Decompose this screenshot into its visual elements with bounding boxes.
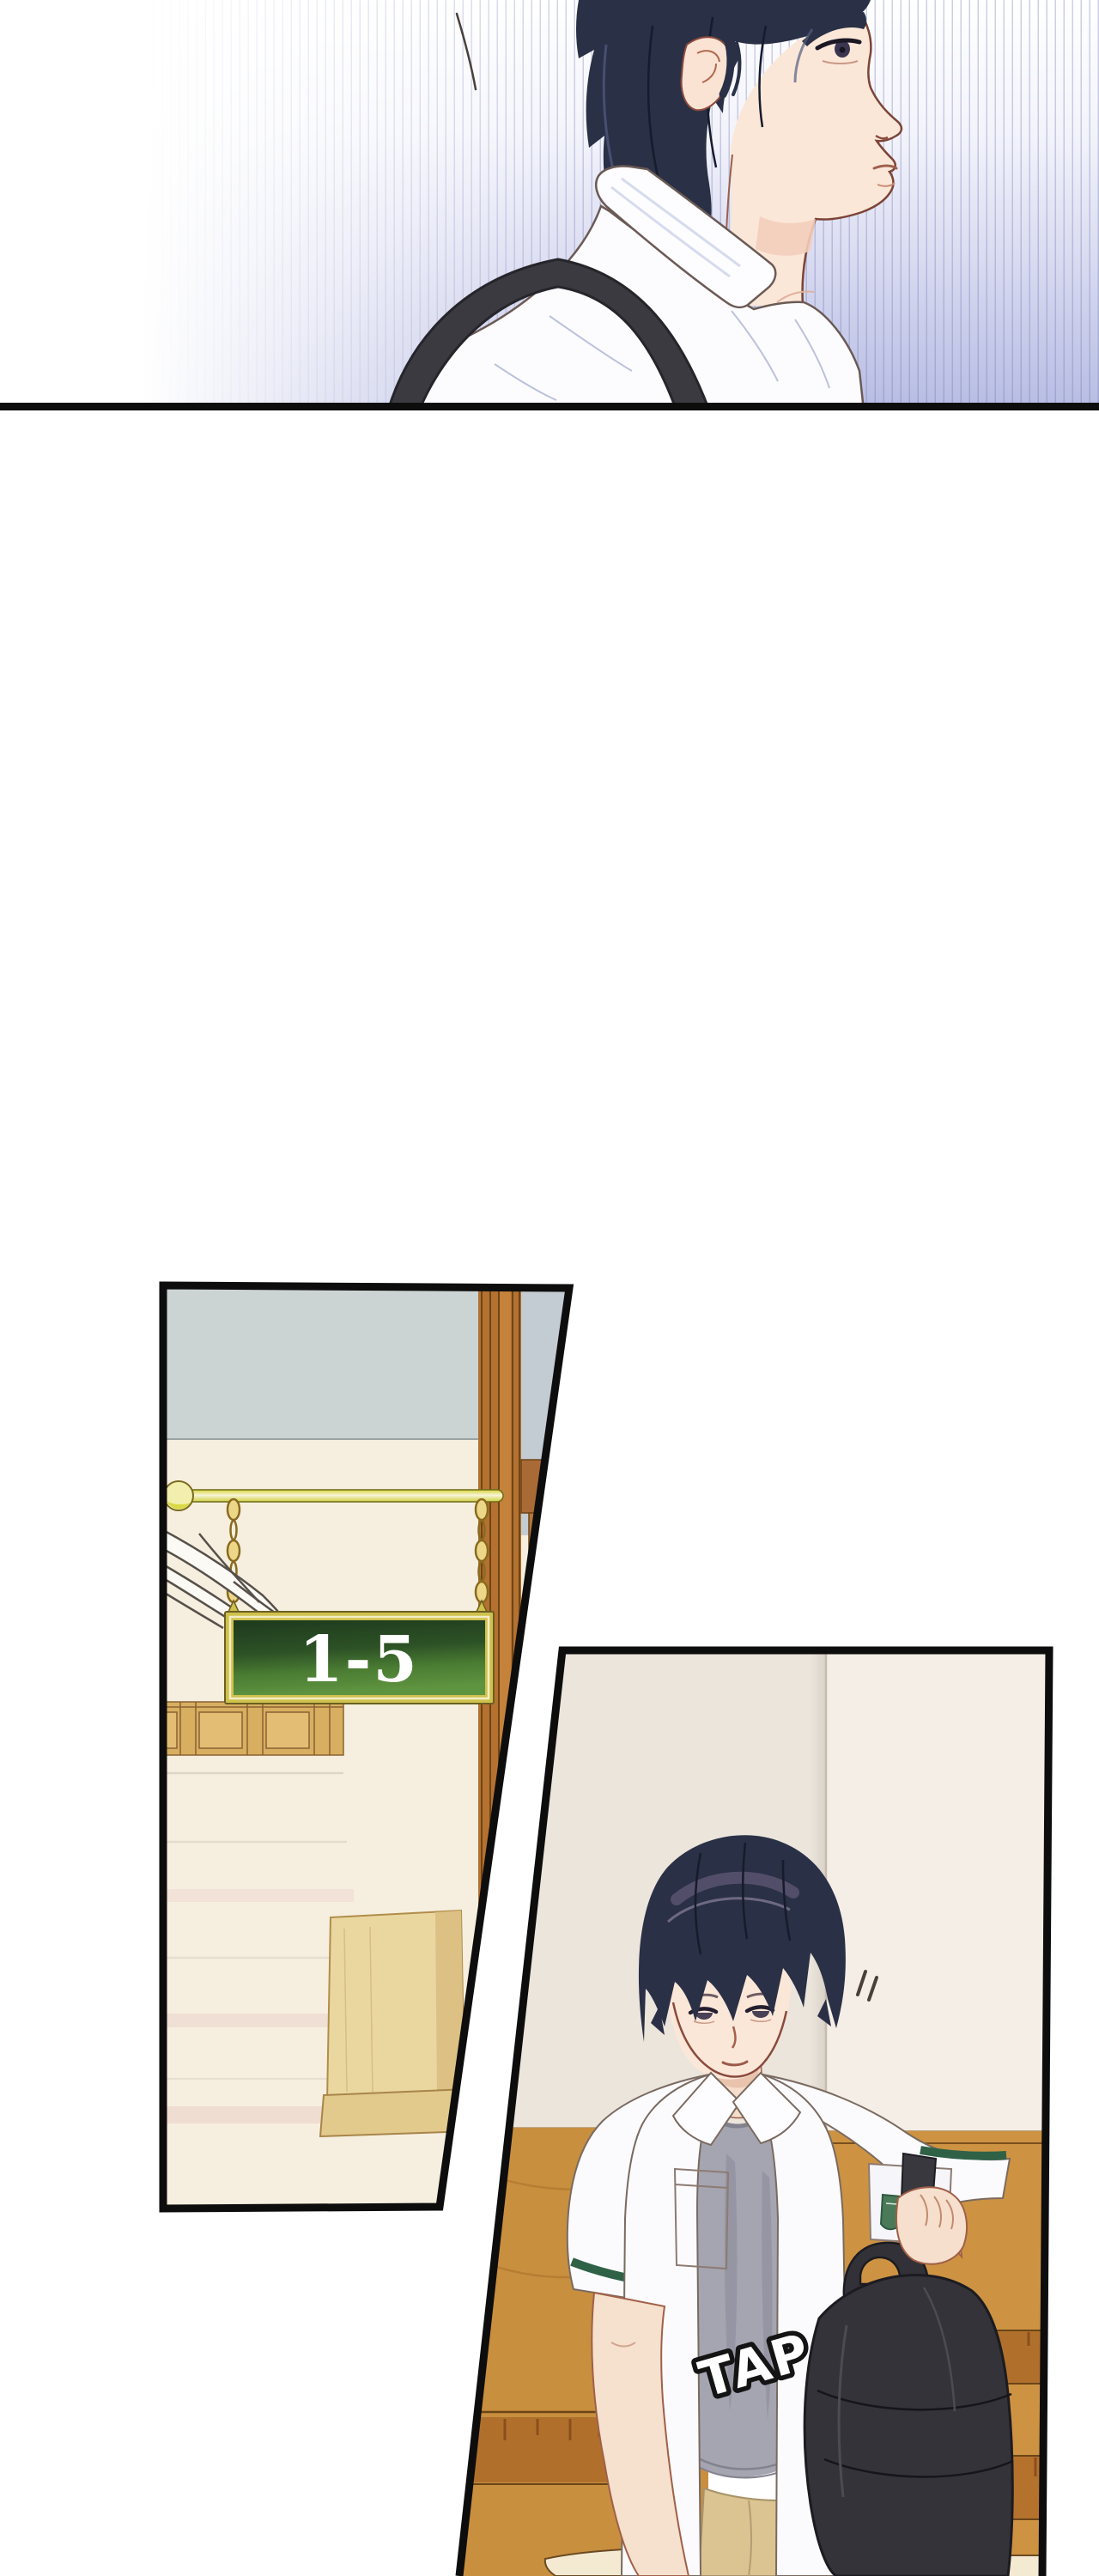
class-sign-text: 1-5 [299, 1623, 419, 1697]
panel-boy-stairs: TAP [443, 1638, 1099, 2576]
pole-chain-right [476, 1499, 488, 1602]
panel-border-line [0, 403, 1099, 410]
motion-line [457, 14, 476, 89]
boy-profile-figure [0, 0, 1099, 410]
panel-top-profile [0, 0, 1099, 410]
boy2-hand [896, 2187, 967, 2263]
comic-page: 1-5 [0, 0, 1099, 2576]
ceiling [151, 1276, 478, 1439]
boy-ear [682, 36, 740, 110]
door-panels [163, 1702, 343, 1755]
